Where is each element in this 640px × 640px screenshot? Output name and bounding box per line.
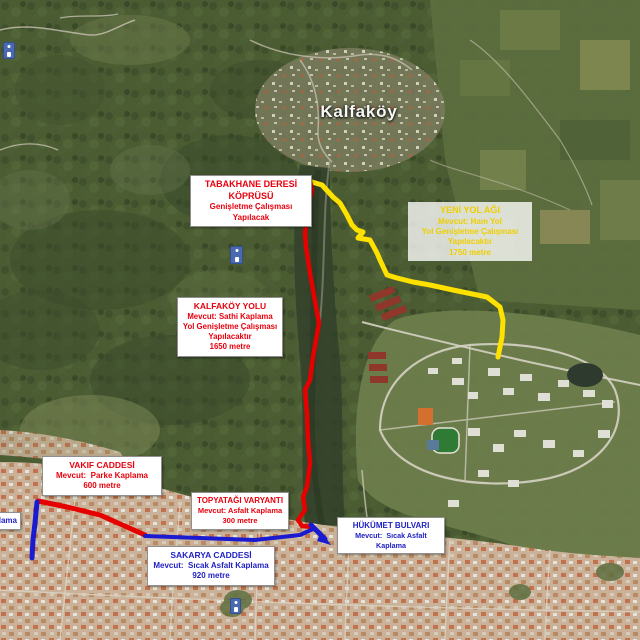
annotation-title: KALFAKÖY YOLU [180,301,280,312]
annotation-title: SAKARYA CADDESİ [150,550,272,561]
annotation-line: Genişletme Çalışması [193,202,309,212]
annotation-topyatagi-varyanti: TOPYATAĞI VARYANTI Mevcut: Asfalt Kaplam… [191,492,289,530]
satellite-map: Kalfaköy TABAKHANE DERESİ KÖPRÜSÜ Genişl… [0,0,640,640]
annotation-line: 1650 metre [180,342,280,352]
annotation-title: VAKIF CADDESİ [45,460,159,471]
annotation-line: 1750 metre [410,248,530,258]
annotation-line: 920 metre [150,571,272,581]
annotation-title: TABAKHANE DERESİ [193,179,309,191]
annotation-line: Yol Genişletme Çalışması [410,227,530,237]
annotation-line: plama [0,516,17,526]
poi-marker-icon [230,598,241,614]
annotation-line: Yapılacak [193,213,309,223]
annotation-line: 300 metre [194,516,286,526]
annotation-line: Yapılacaktır [180,332,280,342]
annotation-edge-partial: plama [0,512,21,530]
annotation-title: KÖPRÜSÜ [193,191,309,203]
annotation-line: Yapılacaktır [410,237,530,247]
annotation-line: Mevcut: Parke Kaplama [45,471,159,481]
annotation-tabakhane-deresi-koprusu: TABAKHANE DERESİ KÖPRÜSÜ Genişletme Çalı… [190,175,312,227]
annotation-line: 600 metre [45,481,159,491]
map-terrain-layer [0,0,640,640]
annotation-vakif-caddesi: VAKIF CADDESİ Mevcut: Parke Kaplama 600 … [42,456,162,496]
annotation-title: HÜKÜMET BULVARI [340,521,442,531]
annotation-yeni-yol-agi: YENİ YOL AĞI Mevcut: Ham Yol Yol Genişle… [408,202,532,261]
annotation-line: Mevcut: Sıcak Asfalt Kaplama [150,561,272,571]
annotation-sakarya-caddesi: SAKARYA CADDESİ Mevcut: Sıcak Asfalt Kap… [147,546,275,586]
annotation-title: YENİ YOL AĞI [410,205,530,217]
annotation-hukumet-bulvari: HÜKÜMET BULVARI Mevcut: Sıcak Asfalt Kap… [337,517,445,554]
annotation-line: Mevcut: Sıcak Asfalt Kaplama [340,531,442,550]
annotation-line: Mevcut: Sathi Kaplama [180,312,280,322]
annotation-title: TOPYATAĞI VARYANTI [194,496,286,506]
annotation-line: Yol Genişletme Çalışması [180,322,280,332]
poi-marker-icon [230,246,243,264]
place-label-kalfakoy: Kalfaköy [300,102,418,122]
annotation-kalfakoy-yolu: KALFAKÖY YOLU Mevcut: Sathi Kaplama Yol … [177,297,283,357]
annotation-line: Mevcut: Ham Yol [410,217,530,227]
annotation-line: Mevcut: Asfalt Kaplama [194,506,286,516]
poi-marker-icon [3,42,15,59]
